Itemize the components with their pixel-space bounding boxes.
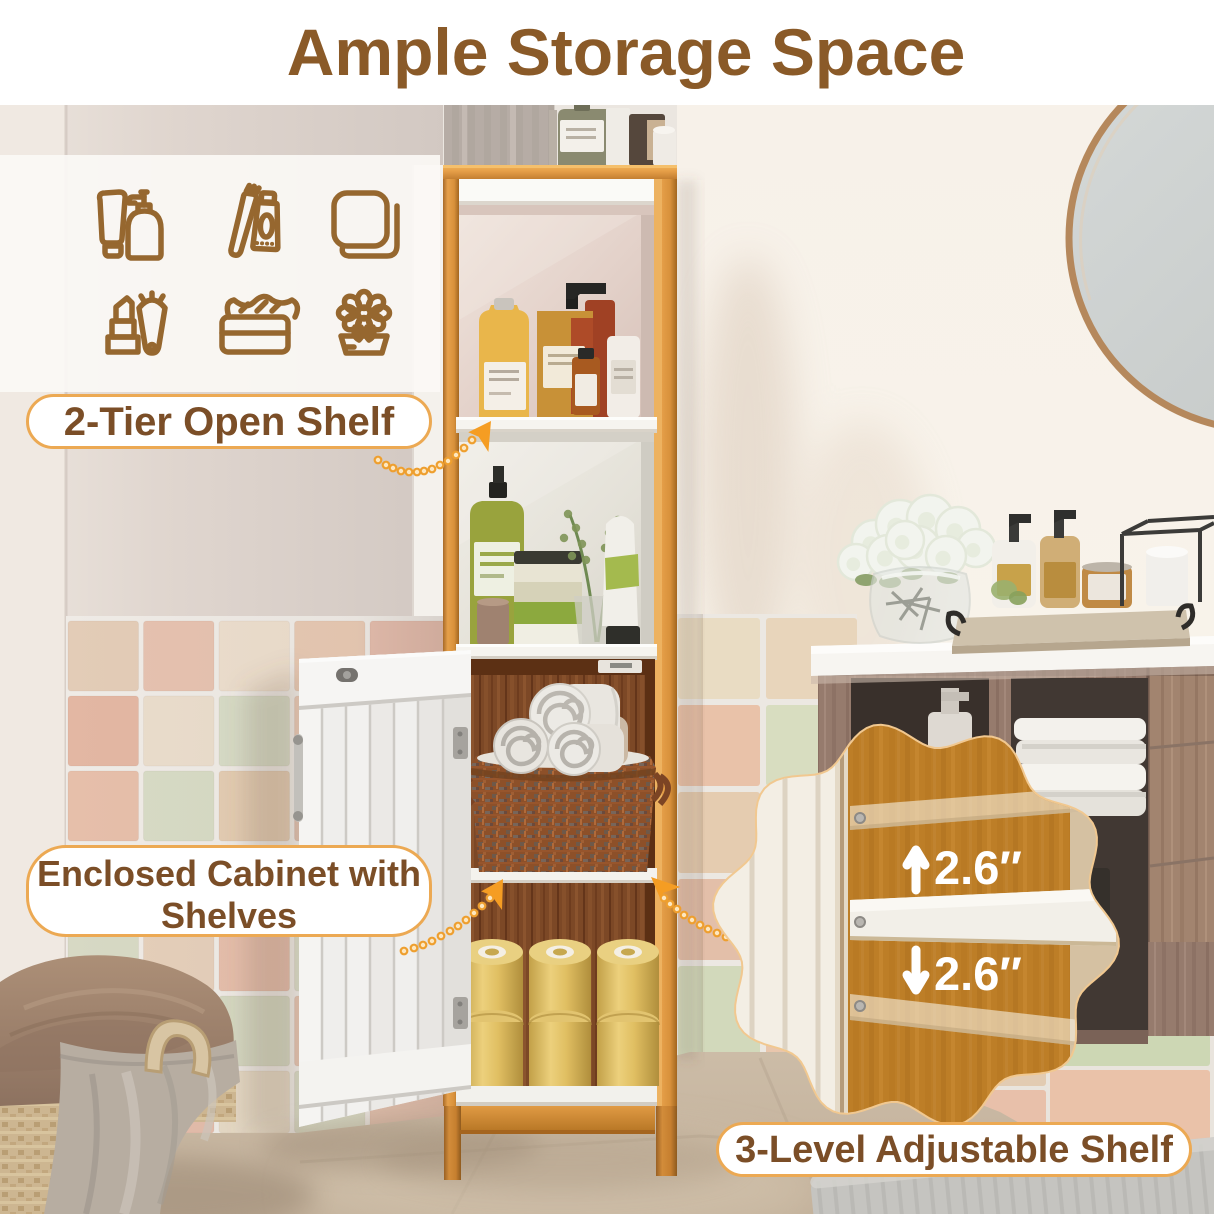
- svg-text:2.6″: 2.6″: [934, 841, 1022, 894]
- svg-text:2.6″: 2.6″: [934, 947, 1022, 1000]
